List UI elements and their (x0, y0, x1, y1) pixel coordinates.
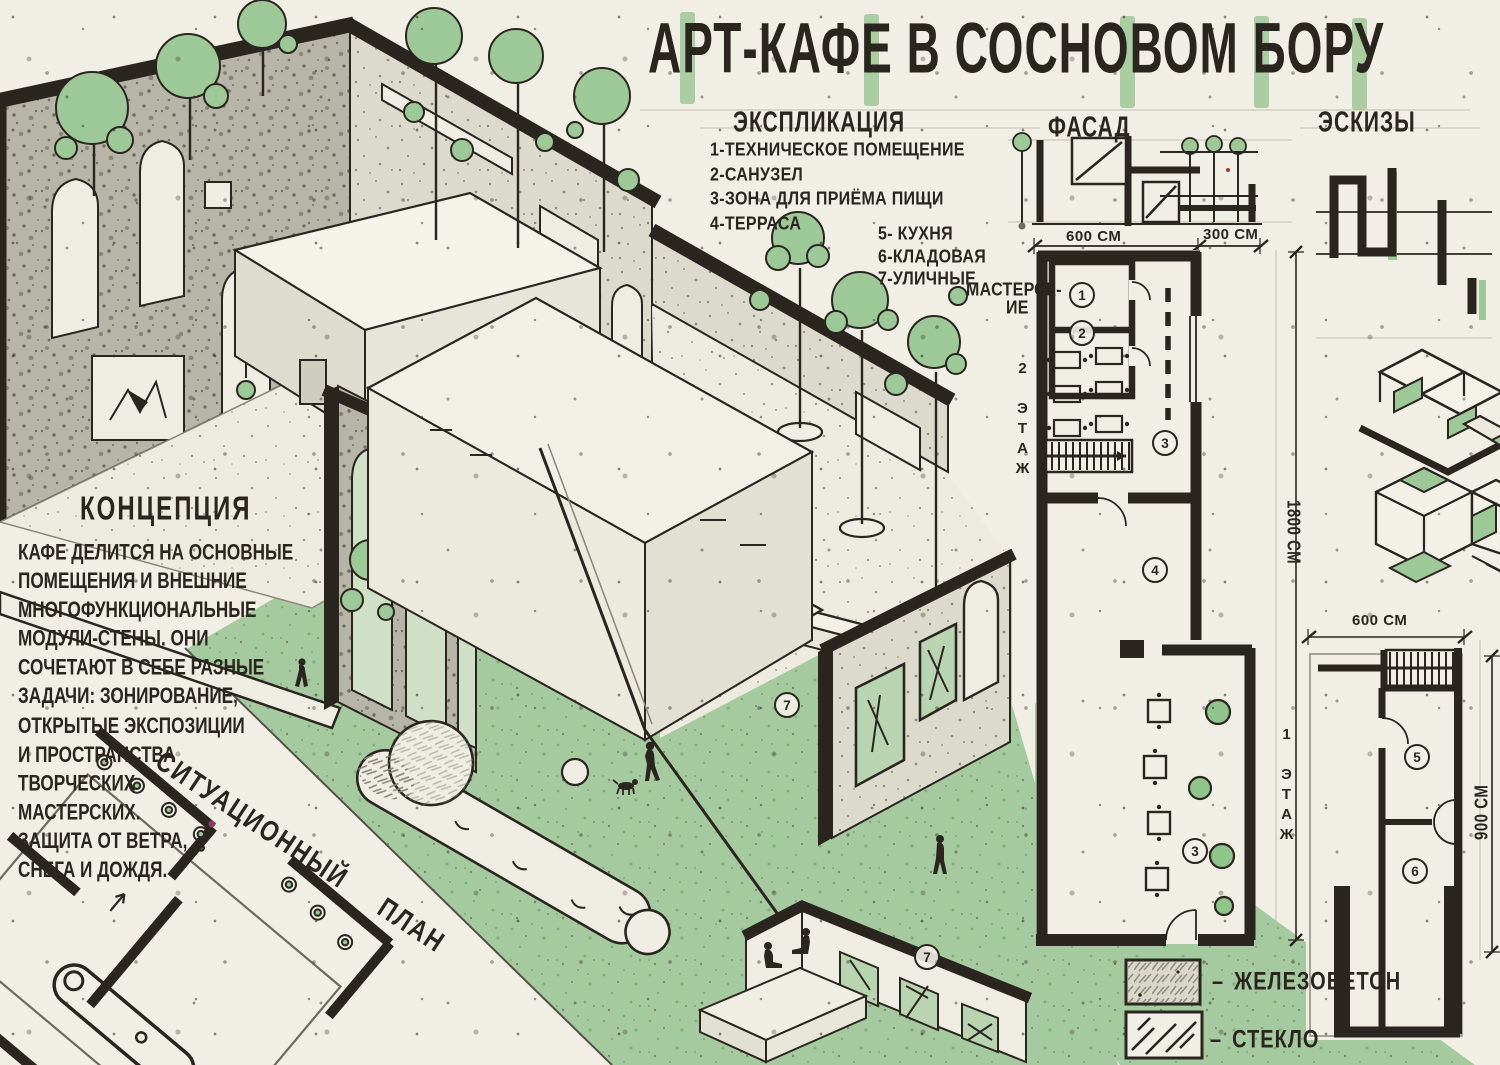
explication-item-7: 7-УЛИЧНЫЕ (878, 269, 976, 290)
plan-stack (1036, 246, 1304, 946)
legend-label-concrete: ЖЕЛЕЗОБЕТОН (1234, 968, 1401, 996)
room-marker-6: 6 (1402, 858, 1428, 884)
explication-item-3: 3-ЗОНА ДЛЯ ПРИЁМА ПИЩИ (710, 189, 944, 210)
room-marker-5: 5 (1404, 744, 1430, 770)
room-marker-3: 3 (1152, 430, 1178, 456)
explication-item-2: 2-САНУЗЕЛ (710, 165, 803, 186)
dim-plans-1800: 1800 СМ (1283, 500, 1303, 564)
room-marker-7b: 7 (914, 944, 940, 970)
room-marker-2: 2 (1069, 320, 1095, 346)
presentation-board: АРТ-КАФЕ В СОСНОВОМ БОРУ ЭКСПЛИКАЦИЯ ФАС… (0, 0, 1500, 1065)
room-marker-7a: 7 (774, 692, 800, 718)
explication-item-7-cont2: ИЕ (1006, 298, 1029, 319)
sketch-axon-2 (1376, 468, 1500, 590)
legend-item-glass: –СТЕКЛО (1210, 1026, 1319, 1055)
heading-concept: КОНЦЕПЦИЯ (80, 490, 251, 529)
heading-explication: ЭКСПЛИКАЦИЯ (733, 107, 905, 139)
legend-dash: – (1212, 968, 1224, 996)
explication-item-1: 1-ТЕХНИЧЕСКОЕ ПОМЕЩЕНИЕ (710, 140, 965, 161)
room-marker-1: 1 (1069, 282, 1095, 308)
room-marker-4: 4 (1142, 557, 1168, 583)
dim-facade-600: 600 СМ (1066, 228, 1121, 245)
explication-item-6: 6-КЛАДОВАЯ (878, 247, 986, 268)
dim-facade-300: 300 СМ (1203, 226, 1258, 243)
heading-facade: ФАСАД (1048, 112, 1131, 144)
room-marker-3b: 3 (1182, 838, 1208, 864)
heading-sketches: ЭСКИЗЫ (1318, 107, 1416, 139)
legend-item-concrete: –ЖЕЛЕЗОБЕТОН (1212, 968, 1401, 997)
legend-dash: – (1210, 1026, 1222, 1054)
explication-item-5: 5- КУХНЯ (878, 224, 953, 245)
dim-plan1-900: 900 СМ (1472, 785, 1492, 840)
dim-plan1-600: 600 СМ (1352, 612, 1407, 629)
explication-item-4: 4-ТЕРРАСА (710, 214, 801, 235)
floor-label-1: 1 ЭТАЖ (1278, 726, 1295, 846)
page-title: АРТ-КАФЕ В СОСНОВОМ БОРУ (648, 6, 1384, 90)
legend-label-glass: СТЕКЛО (1232, 1026, 1319, 1054)
sketch-axon-1 (1360, 350, 1500, 472)
sketches-area (1316, 168, 1500, 590)
floor-label-2: 2 ЭТАЖ (1014, 360, 1031, 480)
plan2-stairs (1046, 440, 1132, 472)
